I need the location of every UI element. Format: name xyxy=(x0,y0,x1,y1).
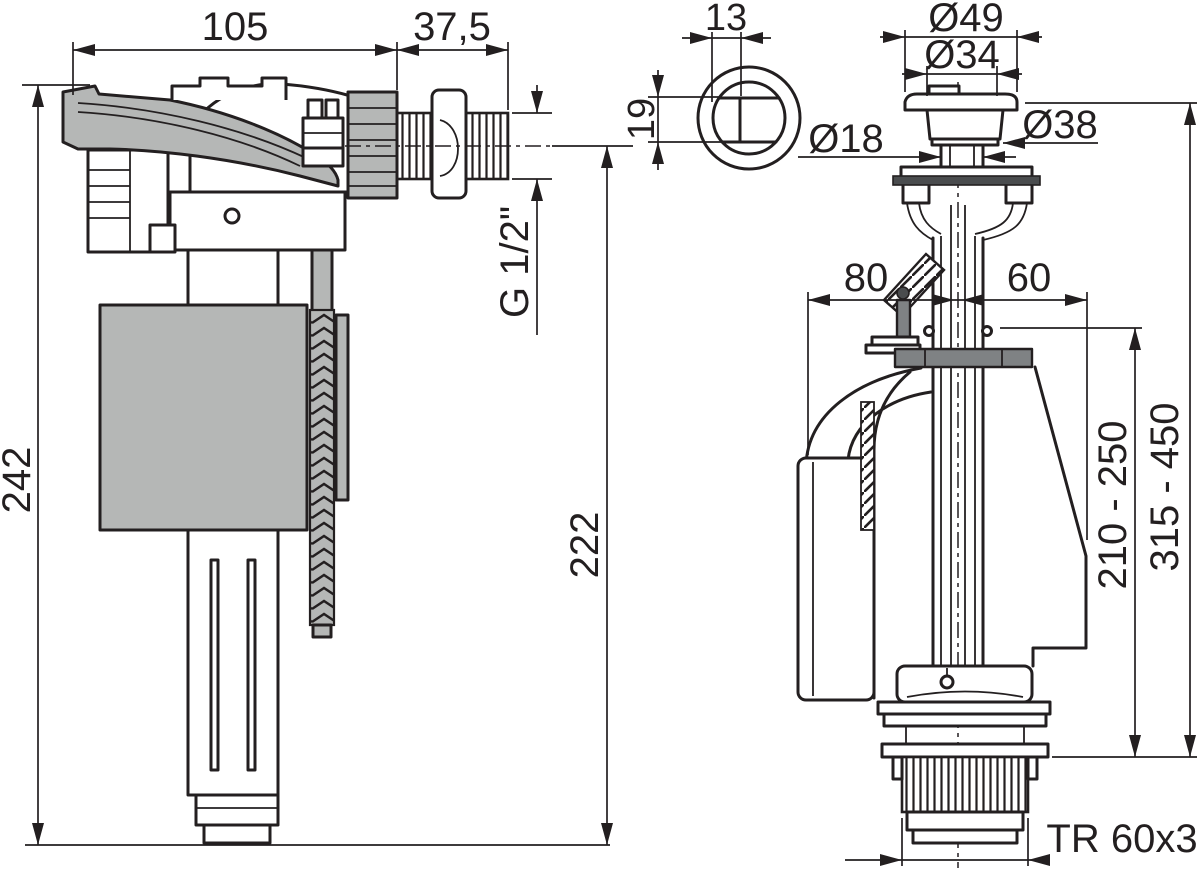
body-hole xyxy=(225,209,239,223)
dim-stem-diameter: Ø18 xyxy=(808,117,884,161)
dim-height-range-total: 315 - 450 xyxy=(1143,402,1187,571)
dim-collar-diameter: Ø38 xyxy=(1022,103,1098,147)
dim-button-height: 19 xyxy=(621,98,663,140)
valve-dimension-drawing: 105 37,5 G 1/2" 242 222 13 xyxy=(0,0,1200,869)
lever-link-housing xyxy=(303,100,343,166)
technical-drawing-canvas: 105 37,5 G 1/2" 242 222 13 xyxy=(0,0,1200,869)
rod-hook xyxy=(941,676,953,688)
dim-height-below-axis: 222 xyxy=(563,512,607,579)
lock-nut xyxy=(432,90,466,198)
fill-valve-side-view xyxy=(63,78,508,843)
latch-knob-right xyxy=(983,327,992,336)
fill-valve-inlet-thread xyxy=(348,90,508,198)
seal-gasket-bar xyxy=(893,176,1040,185)
flush-valve-view xyxy=(798,82,1086,868)
dim-base-thread: TR 60x3 xyxy=(1046,817,1197,861)
dim-button-diameter: Ø34 xyxy=(924,33,1000,77)
push-button-top-view xyxy=(698,67,800,169)
lever-top-clip xyxy=(172,78,286,100)
overflow-mesh xyxy=(861,402,874,530)
dim-button-width: 13 xyxy=(705,0,747,39)
dim-right-offset: 60 xyxy=(1007,256,1052,300)
flush-valve-mount-plate xyxy=(893,167,1040,203)
float xyxy=(100,305,307,530)
valve-cone-body xyxy=(1033,367,1086,666)
height-clamp-bar xyxy=(895,349,1032,367)
dim-thread-size: G 1/2" xyxy=(493,206,537,318)
dim-height-range-inner: 210 - 250 xyxy=(1091,420,1135,589)
float-clip-bracket xyxy=(88,150,175,252)
flush-elbow xyxy=(798,368,931,700)
valve-base xyxy=(878,666,1050,843)
dim-left-offset: 80 xyxy=(844,256,889,300)
pivot-pin xyxy=(897,287,909,299)
float-guide xyxy=(336,315,348,500)
dim-overall-width: 105 xyxy=(202,5,269,49)
dim-thread-length: 37,5 xyxy=(413,5,491,49)
latch-knob-left xyxy=(925,327,934,336)
base-thread xyxy=(902,757,1028,812)
dim-overall-height: 242 xyxy=(0,447,39,514)
